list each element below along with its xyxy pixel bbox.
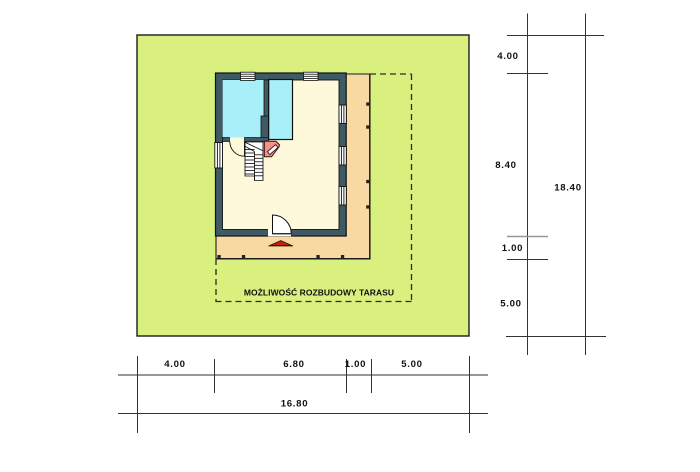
svg-text:18.40: 18.40 xyxy=(554,183,582,194)
svg-text:4.00: 4.00 xyxy=(497,51,518,62)
svg-text:1.00: 1.00 xyxy=(345,359,366,370)
svg-text:16.80: 16.80 xyxy=(281,399,309,410)
svg-text:MOŻLIWOŚĆ ROZBUDOWY TARASU: MOŻLIWOŚĆ ROZBUDOWY TARASU xyxy=(244,287,394,298)
svg-text:5.00: 5.00 xyxy=(401,359,422,370)
svg-text:6.80: 6.80 xyxy=(283,359,304,370)
svg-text:8.40: 8.40 xyxy=(495,160,516,171)
svg-text:1.00: 1.00 xyxy=(502,243,523,254)
svg-text:4.00: 4.00 xyxy=(164,359,185,370)
svg-text:5.00: 5.00 xyxy=(500,299,521,310)
